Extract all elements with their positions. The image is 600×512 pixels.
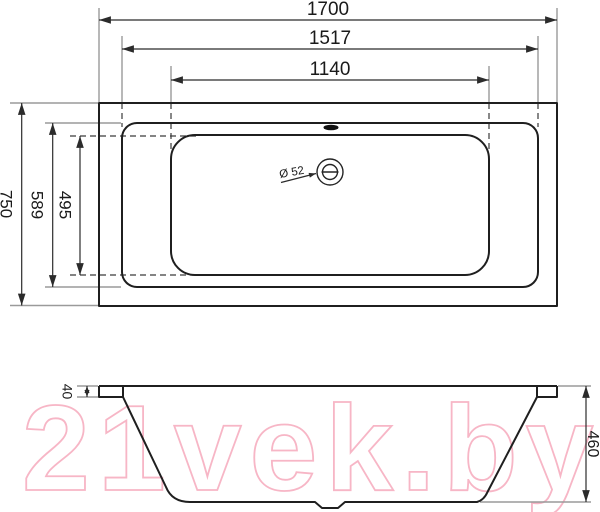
rim-height-label: 40 bbox=[60, 384, 76, 400]
drain-diameter-label: Ø 52 bbox=[278, 165, 305, 181]
watermark-text: 21vek.by bbox=[22, 380, 600, 512]
drain: Ø 52 bbox=[278, 159, 343, 185]
technical-drawing: 21vek.by Ø 52 bbox=[0, 0, 600, 512]
overall-width-label: 750 bbox=[0, 190, 16, 218]
dimension-overall-length: 1700 bbox=[99, 0, 557, 20]
overall-height-label: 460 bbox=[584, 431, 600, 458]
rim-width-label: 589 bbox=[28, 191, 47, 219]
top-view: Ø 52 bbox=[99, 103, 557, 306]
dimension-rim-width: 589 bbox=[28, 123, 53, 287]
projection-dashed-lines bbox=[70, 103, 538, 275]
bathtub-drawing-svg: 21vek.by Ø 52 bbox=[0, 0, 600, 512]
basin-length-label: 1140 bbox=[310, 59, 351, 80]
basin-width-label: 495 bbox=[56, 191, 75, 219]
overall-length-label: 1700 bbox=[307, 0, 349, 20]
tub-rim-edge bbox=[122, 123, 538, 287]
dimension-basin-width: 495 bbox=[56, 136, 81, 275]
dimension-rim-length: 1517 bbox=[122, 28, 538, 49]
rim-length-label: 1517 bbox=[309, 28, 351, 49]
dimension-basin-length: 1140 bbox=[171, 59, 489, 80]
tub-basin-edge bbox=[171, 135, 489, 275]
overflow-hole bbox=[324, 125, 339, 131]
dimension-overall-width: 750 bbox=[0, 103, 22, 306]
